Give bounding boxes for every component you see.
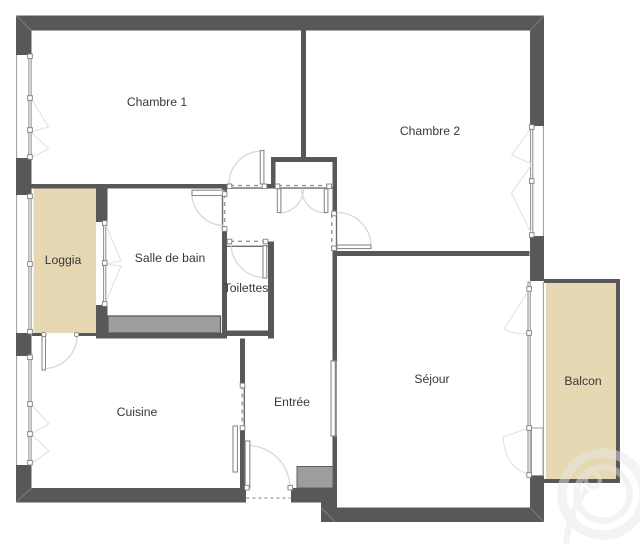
svg-text:Cuisine: Cuisine [117,405,158,419]
svg-text:Entrée: Entrée [274,395,310,409]
svg-text:Chambre 1: Chambre 1 [127,95,188,109]
svg-text:Balcon: Balcon [564,374,601,388]
svg-text:Toilettes: Toilettes [224,281,269,295]
svg-text:Séjour: Séjour [414,372,449,386]
svg-text:Salle de bain: Salle de bain [135,251,205,265]
svg-text:Loggia: Loggia [45,253,82,267]
svg-text:Chambre 2: Chambre 2 [400,124,461,138]
